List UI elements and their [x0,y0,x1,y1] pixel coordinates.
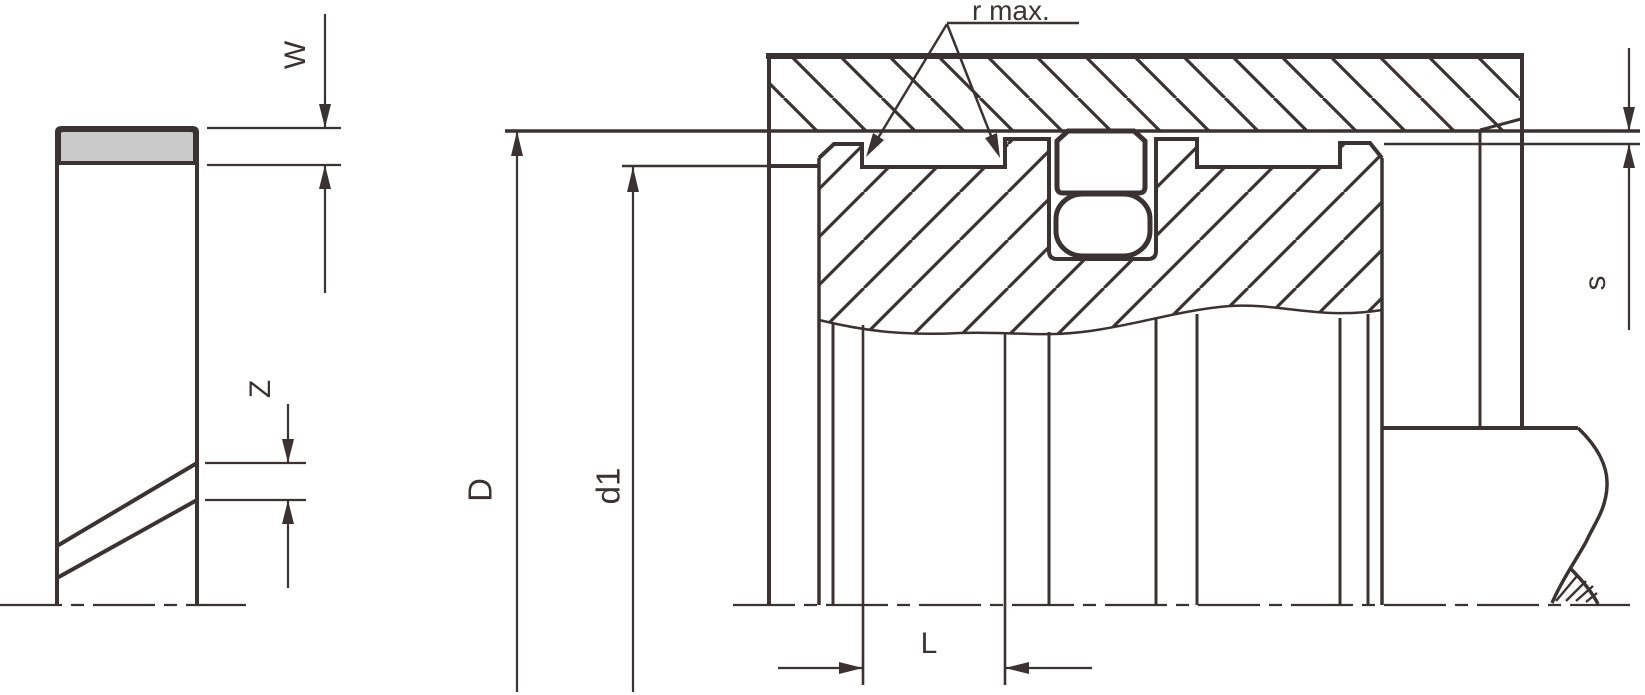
gap-cut-line-upper [57,463,197,546]
note-label-rmax: r max. [972,0,1050,25]
dim-label-s: s [1581,276,1611,291]
shaft [1382,428,1607,604]
dim-label-d: D [464,478,497,502]
dim-label-z: Z [246,380,276,398]
shaft-break-curve-lower [1570,568,1598,604]
dimension-z [205,404,306,588]
seal-assembly [1056,131,1150,256]
dim-label-l: L [921,629,938,659]
dimension-w [207,14,341,293]
dim-label-w: W [281,41,311,69]
seal-installation-drawing [0,0,1645,695]
dimension-d1 [622,166,770,692]
technical-drawing-canvas: W Z D d1 s L r max. [0,0,1645,695]
seal-contact-band [59,130,195,163]
seal-ring-side-view [0,128,246,606]
cap-seal [1057,131,1145,193]
gap-cut-line-lower [57,500,197,578]
o-ring [1056,194,1150,256]
dimension-d [511,131,523,692]
dim-label-d1: d1 [592,468,625,505]
